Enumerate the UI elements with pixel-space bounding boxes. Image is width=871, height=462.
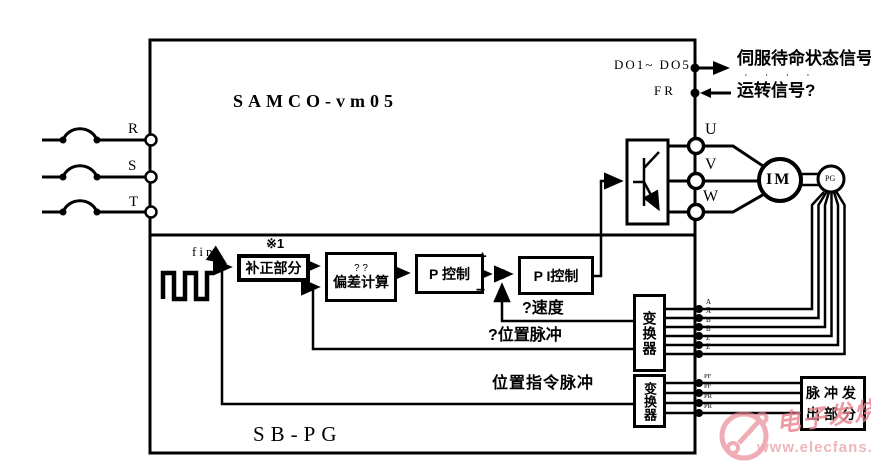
motor-label: IM (766, 172, 791, 188)
correction-note-label: ※1 (266, 237, 284, 250)
channel-label-pf: PF (704, 374, 711, 381)
fr-input-arrow (691, 88, 732, 98)
channel-label-pr: PR (704, 394, 712, 401)
channel-label-z-bar: Z̅ (706, 344, 710, 351)
sub-unit-title: SB-PG (253, 424, 343, 445)
position-pulse-label: ?位置脉冲 (488, 328, 562, 344)
phase-label-r: R (128, 122, 138, 137)
fr-terminal-label: FR (654, 84, 676, 97)
run-signal-label: 运转信号? (737, 82, 815, 99)
deviation-block-label: 偏差计算 (333, 274, 389, 291)
encoder-label: PG (825, 175, 835, 183)
correction-block: 补正部分 (237, 254, 310, 282)
p-control-block: P 控制 (415, 254, 484, 294)
converter-top-label: 变换器 (640, 311, 660, 356)
wiring-layer (0, 0, 871, 462)
switch-contacts (60, 137, 101, 216)
do-terminal-label: DO1~ DO5 (614, 58, 691, 71)
pulse-command-wires (666, 383, 801, 413)
converter-bottom-block: 变换器 (633, 374, 666, 428)
phase-label-s: S (128, 159, 136, 174)
output-label-w: W (703, 189, 718, 205)
output-label-v: V (705, 157, 717, 173)
pi-to-inverter-wire (594, 181, 620, 276)
pulse-train-icon (163, 273, 213, 299)
terminal-rings (146, 135, 704, 220)
output-label-u: U (705, 122, 717, 138)
fin-label: fin (192, 245, 215, 258)
channel-label-a: A (706, 299, 711, 306)
converter-top-block: 变换器 (633, 294, 666, 372)
main-unit-title: SAMCO-vm05 (233, 92, 398, 110)
watermark-url-text: www.elecfans.com (757, 440, 871, 455)
channel-label-pf-bar: P̅F̅ (704, 384, 711, 391)
inverter-block (627, 140, 668, 224)
channel-label-a-bar: A̅ (706, 308, 711, 315)
deviation-block: ? ? 偏差计算 (325, 252, 397, 302)
servo-block-diagram: SAMCO-vm05 SB-PG R S T DO1~ DO5 伺服待命状态信号… (0, 0, 871, 462)
plus-sign: + (478, 249, 487, 264)
position-cmd-pulse-label: 位置指令脉冲 (492, 376, 594, 392)
channel-label-z: Z (706, 335, 710, 342)
minus-sign: − (476, 283, 485, 299)
summing-junction (497, 269, 507, 279)
phase-label-t: T (129, 195, 138, 210)
deviation-block-top-text: ? ? (354, 264, 368, 274)
converter-bottom-label: 变换器 (640, 382, 659, 421)
channel-label-b: B (706, 317, 711, 324)
pi-control-block: P I控制 (518, 256, 594, 295)
channel-label-pr-bar: P̅R̅ (704, 404, 712, 411)
channel-label-b-bar: B̅ (706, 326, 711, 333)
cabinet-frame (150, 40, 695, 453)
speed-signal-label: ?速度 (522, 301, 564, 317)
servo-ready-signal-label: 伺服待命状态信号 (737, 50, 871, 67)
signal-dots: · · · · (744, 70, 817, 81)
